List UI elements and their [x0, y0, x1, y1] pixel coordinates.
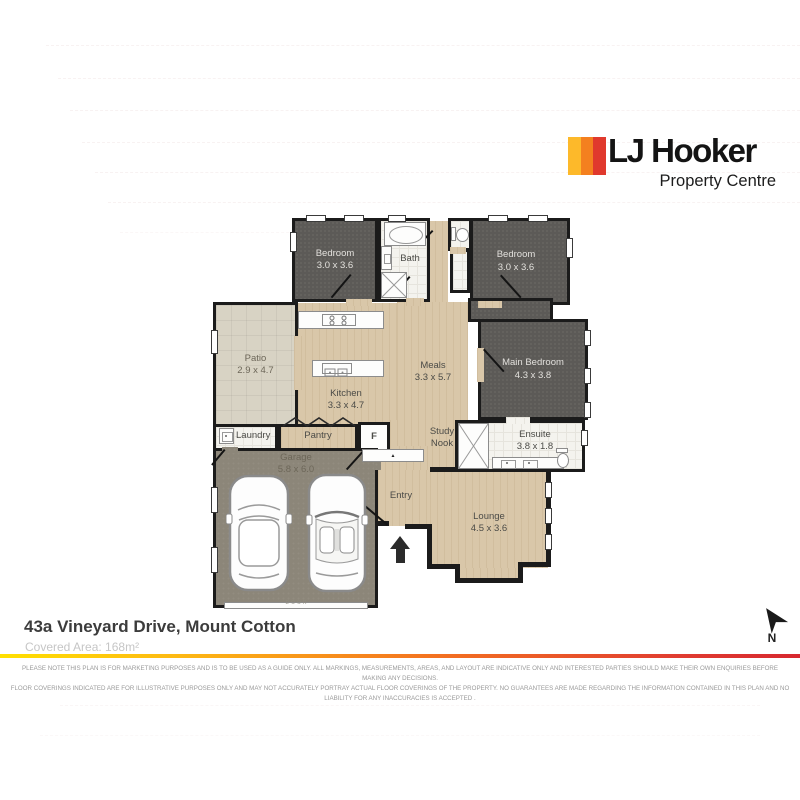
bedroom-left-label: Bedroom 3.0 x 3.6 [316, 248, 355, 273]
shower-icon [381, 272, 407, 298]
cooktop-burners [324, 315, 354, 325]
room-name: Main Bedroom [502, 357, 564, 369]
north-label: N [758, 631, 786, 645]
logo-stripes-icon [568, 137, 606, 175]
ensuite-toilet-bowl [557, 453, 569, 468]
room-name: Bedroom [316, 248, 355, 260]
window [545, 534, 552, 550]
covered-area: Covered Area: 168m² [25, 640, 139, 654]
door-opening [478, 301, 502, 308]
window [584, 330, 591, 346]
room-dims: 4.3 x 3.8 [502, 370, 564, 382]
desk-marker-icon: ▲ [391, 453, 396, 459]
room-name: Laundry [236, 430, 278, 442]
room-name: Pantry [288, 430, 348, 442]
north-arrow-icon [756, 604, 790, 634]
door-opening [506, 417, 530, 424]
toilet-bowl [456, 228, 469, 242]
room-name: Lounge [447, 511, 531, 523]
pantry-zigzag-icon [282, 415, 356, 428]
window [211, 487, 218, 513]
wall-segment [405, 524, 432, 529]
wall-segment [455, 578, 523, 583]
room-name: Garage [266, 452, 326, 464]
room-dims: 5.8 x 6.0 [266, 464, 326, 476]
window [545, 482, 552, 498]
logo-brand-text: LJ Hooker [608, 132, 778, 170]
garage-door-label: DOOR [252, 600, 342, 606]
divider-gradient-bar [0, 654, 800, 658]
study-nook-label: Study Nook [420, 426, 464, 451]
room-main-bedroom: Main Bedroom 4.3 x 3.8 [478, 319, 588, 420]
wall-segment [430, 467, 460, 472]
room-bedroom-left: Bedroom 3.0 x 3.6 [292, 218, 378, 302]
room-name: Kitchen [300, 388, 392, 400]
vestibule-floor [428, 221, 448, 249]
disclaimer-line-2: FLOOR COVERINGS INDICATED ARE FOR ILLUST… [10, 684, 790, 704]
door-opening [346, 299, 372, 306]
room-dims: 3.8 x 1.8 [495, 441, 575, 453]
room-name: Bedroom [497, 249, 536, 261]
car-convertible-icon [306, 471, 368, 595]
window [306, 215, 326, 222]
window [584, 402, 591, 418]
ensuite-vanity-icon [492, 457, 564, 469]
property-address: 43a Vineyard Drive, Mount Cotton [24, 617, 296, 637]
wall-segment [427, 526, 432, 569]
window [528, 215, 548, 222]
room-dims: 3.3 x 5.7 [398, 372, 468, 384]
kitchen-label: Kitchen 3.3 x 4.7 [300, 388, 392, 413]
watermark-line [58, 78, 800, 79]
bath-label: Bath [390, 253, 430, 265]
sink-bowls [323, 368, 351, 377]
door-opening [406, 298, 424, 306]
linen-closet [450, 249, 470, 293]
watermark-line [60, 705, 760, 706]
disclaimer-text: PLEASE NOTE THIS PLAN IS FOR MARKETING P… [10, 664, 790, 704]
room-name: Study Nook [420, 426, 464, 451]
sink-icon [322, 363, 352, 374]
door-opening [477, 348, 484, 382]
bathtub-icon [384, 222, 426, 246]
room-dims: 2.9 x 4.7 [237, 365, 273, 377]
room-dims: 3.3 x 4.7 [300, 400, 392, 412]
room-name: Entry [380, 490, 422, 502]
laundry-label: Laundry [236, 430, 278, 442]
entry-label: Entry [380, 490, 422, 502]
study-desk: ▲ [362, 449, 424, 462]
window [566, 238, 573, 258]
room-name: Bath [390, 253, 430, 265]
laundry-tub-icon [219, 428, 234, 444]
watermark-line [46, 45, 800, 46]
room-name: Meals [398, 360, 468, 372]
watermark-line [70, 110, 800, 111]
room-bedroom-right: Bedroom 3.0 x 3.6 [470, 218, 570, 305]
entry-arrow-icon [390, 536, 410, 564]
window [344, 215, 364, 222]
main-bedroom-label: Main Bedroom 4.3 x 3.8 [502, 357, 564, 382]
watermark-line [40, 735, 760, 736]
garage-label: Garage 5.8 x 6.0 [266, 452, 326, 477]
door-opening [294, 336, 302, 390]
logo-subtitle: Property Centre [608, 172, 776, 191]
pantry-label: Pantry [288, 430, 348, 442]
lounge-label: Lounge 4.5 x 3.6 [447, 511, 531, 536]
room-dims: 3.0 x 3.6 [497, 262, 536, 274]
disclaimer-line-1: PLEASE NOTE THIS PLAN IS FOR MARKETING P… [10, 664, 790, 684]
ensuite-label: Ensuite 3.8 x 1.8 [495, 429, 575, 454]
window [388, 215, 406, 222]
floorplan-page: LJ Hooker Property Centre Bedroom 3.0 x … [0, 0, 800, 800]
window [581, 430, 588, 446]
watermark-line [108, 202, 800, 203]
car-sedan-icon [226, 472, 292, 594]
patio-label: Patio 2.9 x 4.7 [237, 353, 273, 378]
window [211, 547, 218, 573]
room-dims: 4.5 x 3.6 [447, 523, 531, 535]
window [488, 215, 508, 222]
bedroom-right-label: Bedroom 3.0 x 3.6 [497, 249, 536, 274]
window [290, 232, 297, 252]
window [584, 368, 591, 384]
room-name: Ensuite [495, 429, 575, 441]
cooktop-icon [322, 314, 356, 326]
room-name: Patio [237, 353, 273, 365]
window [545, 508, 552, 524]
room-patio: Patio 2.9 x 4.7 [213, 302, 298, 428]
door-opening [450, 247, 466, 254]
meals-label: Meals 3.3 x 5.7 [398, 360, 468, 385]
room-dims: 3.0 x 3.6 [316, 260, 355, 272]
window [211, 330, 218, 354]
shower-x [382, 273, 406, 297]
fridge-label: F [371, 431, 377, 443]
